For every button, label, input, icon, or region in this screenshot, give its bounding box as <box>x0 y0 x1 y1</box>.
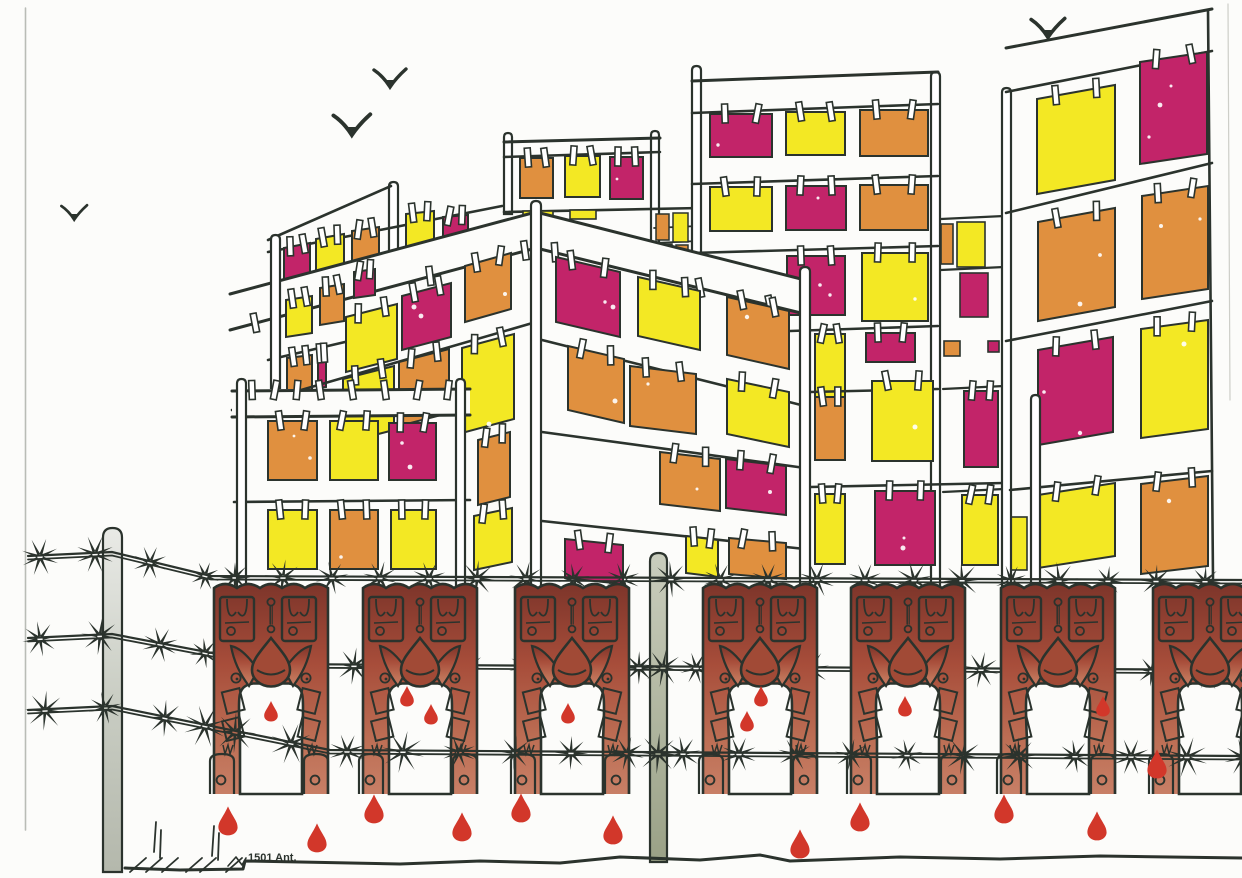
svg-text:1501 Ant.: 1501 Ant. <box>248 852 297 864</box>
